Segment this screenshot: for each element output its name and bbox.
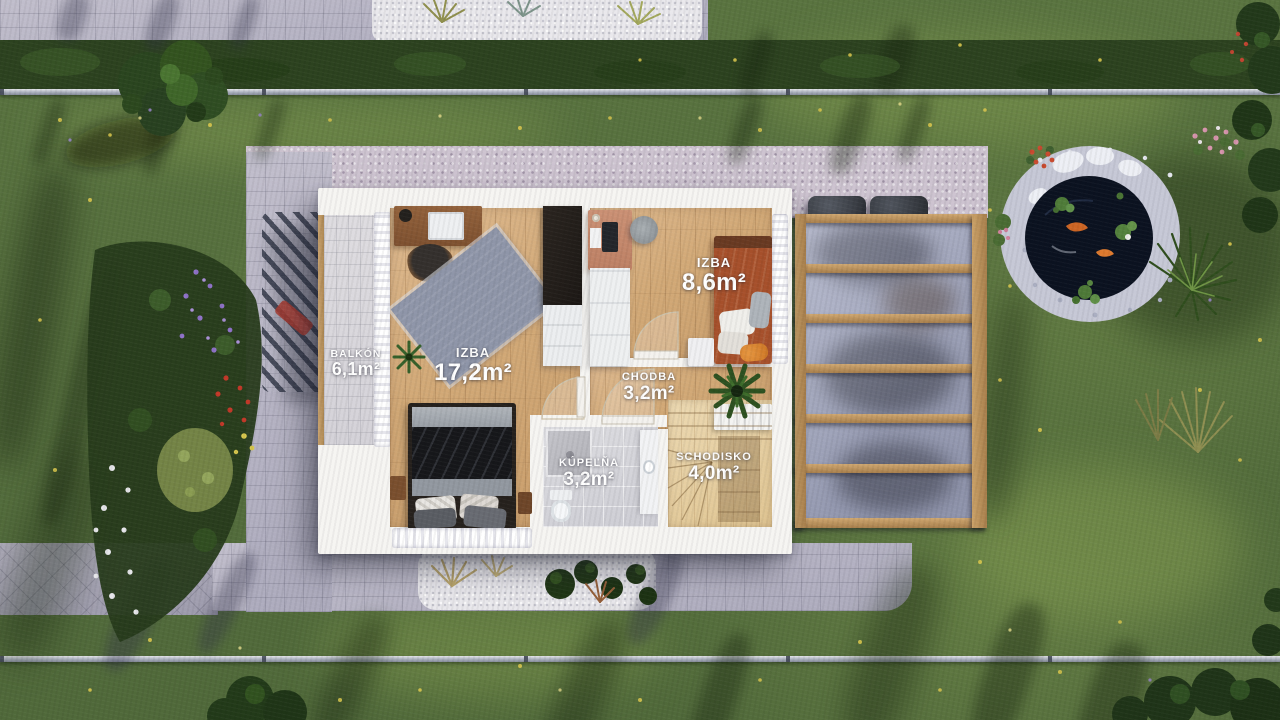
flower-bed-left xyxy=(87,241,261,642)
pergola-side-beam xyxy=(795,214,806,528)
pergola-beam xyxy=(795,314,987,323)
garden-aerial-scene: BALKÓN 6,1m² IZBA 17,2m² IZBA 8,6m² CHOD… xyxy=(0,0,1280,720)
floor-plan-overlay xyxy=(318,188,792,554)
pergola-beam xyxy=(795,518,987,528)
garden-pond xyxy=(993,146,1180,322)
top-bed-grasses xyxy=(424,0,660,24)
bushes-right-edge xyxy=(1230,2,1280,233)
staircase-treads xyxy=(668,413,772,526)
pergola-beam xyxy=(795,414,987,423)
tall-grass-tuft xyxy=(1136,388,1232,452)
door-kupelna xyxy=(602,369,654,424)
pergola-beam xyxy=(795,214,987,223)
potted-plant-bedroom xyxy=(394,342,424,372)
pergola-beam xyxy=(795,464,987,473)
pergola-side-beam xyxy=(972,214,987,528)
potted-plant-hallway xyxy=(711,366,763,416)
door-izba-small xyxy=(634,312,678,359)
door-izba-large xyxy=(542,377,585,419)
pergola-beam xyxy=(795,364,987,373)
bushes-bottom-right xyxy=(1112,588,1280,720)
bottom-bed-plants xyxy=(432,556,657,605)
pergola xyxy=(795,214,987,528)
pergola-beam xyxy=(795,264,987,273)
sun-lounger xyxy=(262,212,326,392)
lounger-cushion xyxy=(274,299,315,337)
bush-bottom-left xyxy=(207,676,307,720)
